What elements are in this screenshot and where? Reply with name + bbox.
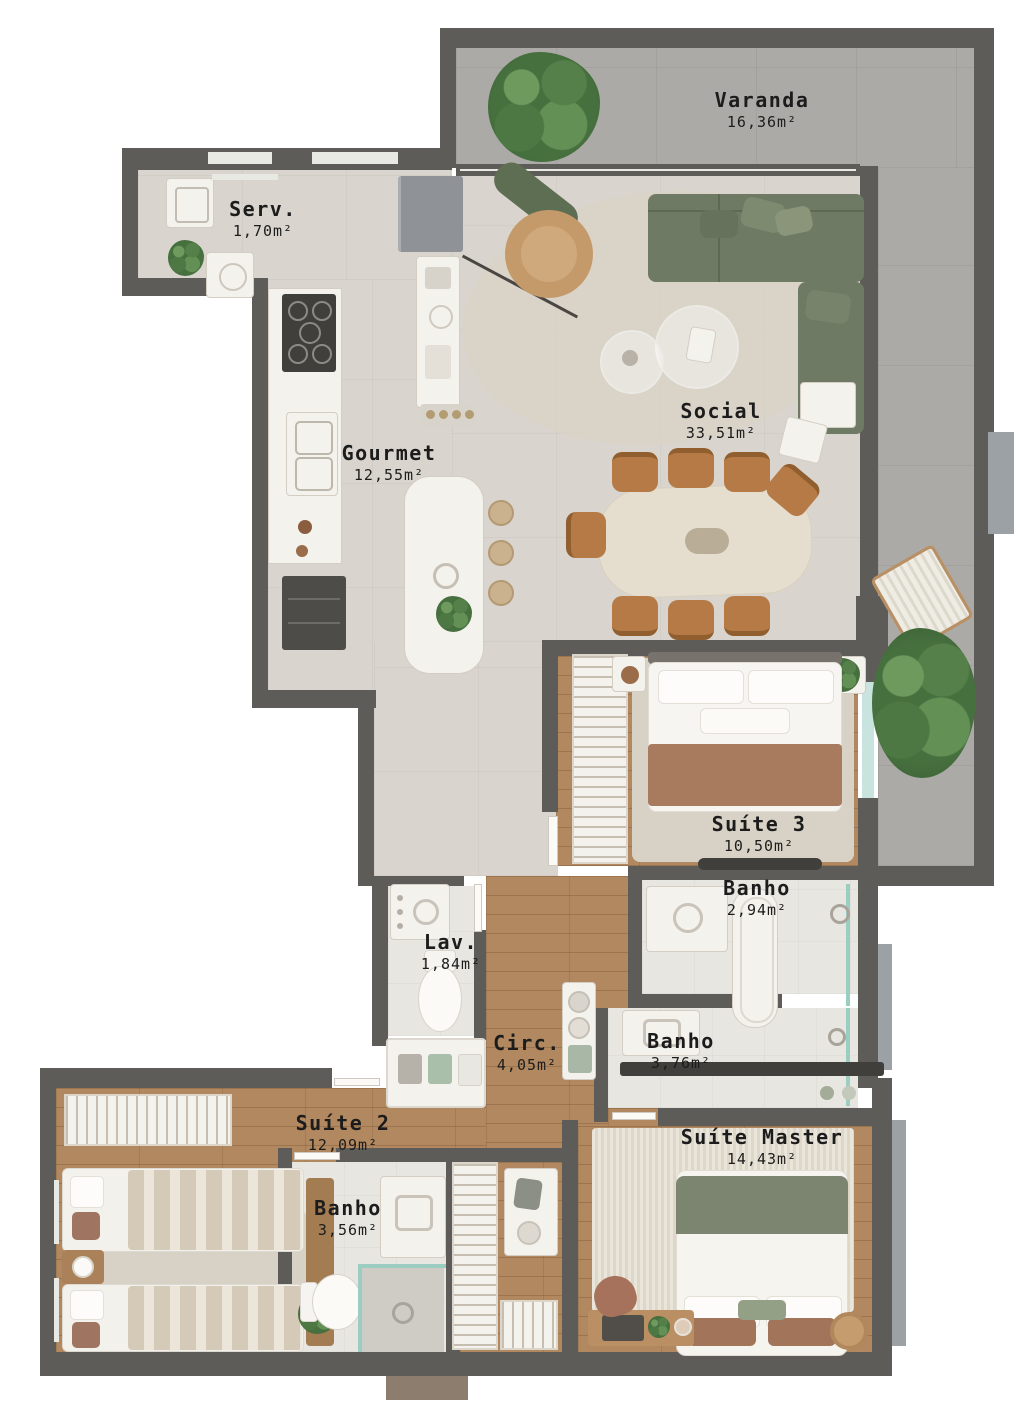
laptop (602, 1315, 644, 1341)
master-left-wall (562, 1120, 578, 1352)
room-label-gourmet: Gourmet 12,55m² (342, 441, 437, 484)
banho-376-left-wall (594, 1008, 608, 1122)
table-centerpiece (685, 528, 729, 554)
banho-suite3-vanity (646, 886, 728, 952)
banho-suite2-toilet (300, 1270, 364, 1332)
niche-shelf (288, 622, 340, 624)
room-label-banho-376: Banho 3,76m² (647, 1029, 715, 1072)
burner-icon (312, 301, 332, 321)
washer-door (219, 263, 247, 291)
sofa-pillow (700, 210, 738, 238)
suite2-top-wall (40, 1068, 332, 1088)
toilet-bowl (312, 1274, 362, 1330)
towel-roll (568, 991, 590, 1013)
room-area: 12,09m² (296, 1136, 391, 1154)
room-area: 3,76m² (647, 1054, 715, 1072)
island-faucet (433, 563, 459, 589)
service-top-wall (122, 148, 452, 170)
room-label-circulacao: Circ. 4,05m² (493, 1031, 561, 1074)
exterior-step (386, 1376, 468, 1400)
suite2-bed-2 (62, 1284, 304, 1364)
stool (488, 500, 514, 526)
niche-shelf (288, 598, 340, 600)
room-area: 14,43m² (681, 1150, 844, 1168)
faucet-dot (397, 895, 403, 901)
room-area: 1,70m² (229, 222, 297, 240)
suite2-nightstand (62, 1250, 104, 1284)
round-armchair (505, 210, 593, 298)
linen-niche (386, 1038, 486, 1108)
service-shelf (212, 174, 278, 180)
shower-drain-icon (392, 1302, 414, 1324)
fridge (398, 176, 463, 252)
burner-icon (299, 322, 321, 344)
sink-basin (295, 457, 333, 491)
varanda-left-wall (440, 28, 456, 168)
suite3-left-wall (542, 640, 558, 812)
closet-hanger-unit (452, 1162, 498, 1350)
table-lamp (72, 1256, 94, 1278)
room-label-lavabo: Lav. 1,84m² (421, 930, 481, 973)
washer (206, 252, 254, 298)
folded-clothes (398, 1054, 422, 1084)
bed-pillow (70, 1290, 104, 1320)
green-towel (568, 1045, 592, 1073)
shower-glass-suite2-v (358, 1264, 362, 1352)
floor-plan: Varanda 16,36m² Serv. 1,70m² Social 33,5… (0, 0, 1024, 1415)
room-name: Suíte 3 (712, 812, 807, 836)
bed-blanket-green (676, 1176, 848, 1234)
bed-pillow (70, 1176, 104, 1208)
dining-chair (724, 596, 770, 636)
room-name: Lav. (421, 930, 481, 954)
room-area: 10,50m² (712, 837, 807, 855)
bed-pillow (700, 708, 790, 734)
varanda-bottom-wall (858, 866, 994, 886)
folded-clothes (428, 1054, 452, 1084)
exterior-pillar (988, 432, 1014, 534)
corridor-left-wall (358, 690, 374, 886)
room-name: Banho (314, 1196, 382, 1220)
towel-roll (568, 1017, 590, 1039)
knob (452, 410, 461, 419)
closet-drawer-unit (500, 1300, 558, 1350)
master-bed (676, 1170, 848, 1356)
dining-chair (668, 448, 714, 488)
bed-pillow-brown (768, 1318, 836, 1346)
kitchen-window (312, 152, 398, 164)
service-window (208, 152, 272, 164)
room-name: Suíte Master (681, 1125, 844, 1149)
sink-basin (295, 421, 333, 455)
desk-decor (674, 1318, 692, 1336)
exterior-texture-mid (878, 944, 892, 1070)
kitchen-appliance (425, 345, 451, 379)
suite3-bed (648, 652, 842, 812)
room-label-social: Social 33,51m² (680, 399, 761, 442)
vanity-sink (395, 1195, 433, 1231)
coffee-table-vase (622, 350, 638, 366)
closet-shelf (504, 1168, 558, 1256)
bed-blanket (648, 744, 842, 806)
dining-chair (668, 600, 714, 640)
kitchen-left-wall (252, 278, 268, 708)
dining-chair (566, 512, 606, 558)
sofa-pillow (804, 289, 852, 325)
dining-chair (724, 452, 770, 492)
room-area: 33,51m² (680, 424, 761, 442)
room-name: Serv. (229, 197, 297, 221)
knob (439, 410, 448, 419)
varanda-top-wall (440, 28, 994, 48)
master-side-table (830, 1312, 868, 1350)
room-area: 16,36m² (715, 113, 810, 131)
pantry-column (416, 256, 460, 408)
wall-decor-dot (820, 1086, 834, 1100)
kitchen-niche (282, 576, 346, 650)
laundry-basin (175, 187, 209, 223)
stool (488, 580, 514, 606)
exterior-texture-right (892, 1120, 906, 1346)
room-name: Circ. (493, 1031, 561, 1055)
vanity-sink (413, 899, 439, 925)
bed-pillow-brown (72, 1322, 100, 1348)
room-label-banho-suite-2: Banho 3,56m² (314, 1196, 382, 1239)
right-mid-wall (858, 876, 878, 1088)
suite2-window-1 (54, 1180, 59, 1244)
wall-decor-dot (842, 1086, 856, 1100)
faucet-dot (397, 923, 403, 929)
dining-chair (612, 452, 658, 492)
room-name: Social (680, 399, 761, 423)
stool (488, 540, 514, 566)
toilet-bowl (418, 966, 462, 1032)
kitchen-appliance (429, 305, 453, 329)
bed-pillow (748, 670, 834, 704)
clock-icon (621, 666, 639, 684)
closet-top-wall (446, 1148, 576, 1162)
folded-clothes (458, 1054, 482, 1086)
kitchen-island (404, 476, 484, 674)
burner-icon (288, 344, 308, 364)
bed-pillow (658, 670, 744, 704)
knob (426, 410, 435, 419)
banho-suite3-left-wall (628, 866, 642, 1008)
shower-glass-suite3 (846, 884, 850, 1006)
room-label-varanda: Varanda 16,36m² (715, 88, 810, 131)
room-label-servico: Serv. 1,70m² (229, 197, 297, 240)
room-label-banho-suite-3: Banho 2,94m² (723, 876, 791, 919)
cooktop (282, 294, 336, 372)
room-name: Banho (647, 1029, 715, 1053)
suite3-nightstand-left (612, 656, 646, 692)
suite3-bench (698, 858, 822, 870)
suite2-wardrobe (64, 1094, 232, 1146)
sofa-seam (718, 194, 720, 282)
room-area: 12,55m² (342, 466, 437, 484)
shower-glass-suite2-h (358, 1264, 446, 1268)
bed-pillow-green (738, 1300, 786, 1320)
corridor-tile-floor (374, 642, 558, 876)
room-label-suite-3: Suíte 3 10,50m² (712, 812, 807, 855)
room-area: 1,84m² (421, 955, 481, 973)
master-door (612, 1112, 656, 1120)
burner-icon (312, 344, 332, 364)
towel-roll (517, 1221, 541, 1245)
kitchen-decor (296, 545, 308, 557)
shower-head-icon (830, 904, 850, 924)
room-area: 3,56m² (314, 1221, 382, 1239)
shower-head-icon (828, 1028, 846, 1046)
banho-suite2-vanity (380, 1176, 446, 1258)
bed-pillow-brown (688, 1318, 756, 1346)
coffee-maker (425, 267, 451, 289)
dining-chair (612, 596, 658, 636)
suite3-door (548, 816, 558, 866)
bag-icon (513, 1177, 543, 1210)
room-label-suite-master: Suíte Master 14,43m² (681, 1125, 844, 1168)
faucet-dot (397, 909, 403, 915)
suite2-door (334, 1078, 380, 1086)
room-name: Suíte 2 (296, 1111, 391, 1135)
suite2-window-2 (54, 1278, 59, 1342)
bed-duvet (128, 1286, 302, 1350)
lavabo-door (474, 884, 482, 932)
master-top-wall (658, 1108, 892, 1126)
kitchen-decor (298, 520, 312, 534)
bed-duvet (128, 1170, 302, 1250)
bed-pillow-brown (72, 1212, 100, 1240)
service-left-wall (122, 148, 138, 296)
towel-shelf (562, 982, 596, 1080)
room-area: 2,94m² (723, 901, 791, 919)
laundry-sink (166, 178, 214, 228)
burner-icon (288, 301, 308, 321)
suite2-bed-1 (62, 1168, 304, 1252)
kitchen-sink (286, 412, 338, 496)
room-name: Gourmet (342, 441, 437, 465)
lavabo-left-wall (372, 876, 388, 1046)
knob (465, 410, 474, 419)
vanity-sink (673, 903, 703, 933)
shower-floor (362, 1268, 444, 1352)
knob-strip (420, 404, 476, 426)
room-area: 4,05m² (493, 1056, 561, 1074)
room-name: Varanda (715, 88, 810, 112)
room-name: Banho (723, 876, 791, 900)
room-label-suite-2: Suíte 2 12,09m² (296, 1111, 391, 1154)
